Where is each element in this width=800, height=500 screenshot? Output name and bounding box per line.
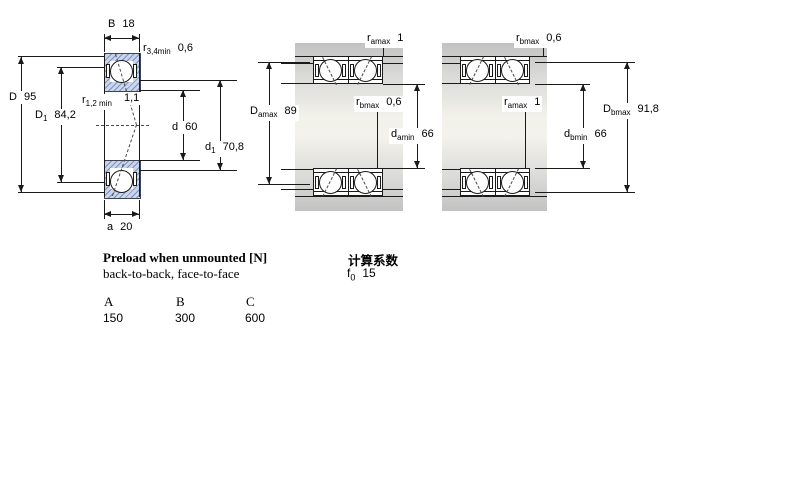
dim-label-r34min: r3,4min0,6 (141, 42, 195, 58)
cage-segment (524, 176, 528, 189)
dim-label-d: d60 (170, 121, 199, 134)
pair-divider-line (348, 168, 349, 196)
arrowhead (217, 163, 223, 170)
preload-column-a: A (104, 294, 113, 310)
bearing-ball (501, 59, 524, 82)
arrowhead (414, 161, 420, 168)
shaft-line (383, 63, 403, 64)
dimension-line-Dbmax (627, 62, 628, 192)
cage-segment (377, 176, 381, 189)
bearing-ball (319, 59, 342, 82)
bearing-datasheet-drawing: B18 r3,4min0,6 D95 D184,2 r1,2 min 1,1 d… (0, 0, 800, 500)
cage-segment (133, 64, 137, 78)
extension-line (140, 90, 200, 91)
cage-segment (524, 64, 528, 77)
preload-subtitle: back-to-back, face-to-face (103, 266, 239, 282)
extension-line (57, 182, 104, 183)
extension-line (535, 192, 635, 193)
shaft-line (383, 189, 403, 190)
arrowhead (132, 35, 139, 41)
arrowhead (180, 153, 186, 160)
arrowhead (58, 67, 64, 74)
leader-line (525, 109, 526, 168)
shaft-line (281, 189, 313, 190)
arrowhead (217, 80, 223, 87)
cage-segment (133, 172, 137, 186)
preload-column-b: B (176, 294, 185, 310)
arrowhead (580, 84, 586, 91)
center-line (96, 125, 149, 126)
preload-column-c: C (246, 294, 255, 310)
extension-line (258, 184, 310, 185)
dim-value-r12min: 1,1 (122, 92, 141, 105)
dim-label-ramax: ramax1 (502, 96, 542, 112)
shaft-line (442, 169, 460, 170)
pair-divider-line (348, 56, 349, 84)
arrowhead (580, 161, 586, 168)
shaft-line (281, 83, 313, 84)
extension-line (535, 168, 590, 169)
housing-step-line (442, 196, 547, 197)
extension-line (18, 56, 104, 57)
arrowhead (104, 35, 111, 41)
arrowhead (132, 211, 139, 217)
shaft-line (442, 63, 460, 64)
cage-segment (489, 176, 493, 189)
bearing-ball (501, 171, 524, 194)
cage-segment (489, 64, 493, 77)
shaft-line (281, 63, 313, 64)
extension-line (18, 192, 104, 193)
dim-label-B: B18 (106, 18, 137, 31)
dim-label-a: a20 (105, 221, 134, 234)
arrowhead (266, 62, 272, 69)
arrowhead (414, 84, 420, 91)
preload-value-a: 150 (103, 311, 123, 325)
pair-divider-line (495, 168, 496, 196)
pair-divider-line (495, 56, 496, 84)
cage-segment (342, 64, 346, 77)
arrowhead (266, 177, 272, 184)
extension-line (535, 62, 635, 63)
arrowhead (180, 90, 186, 97)
arrowhead (18, 57, 24, 64)
dimension-line-D (21, 57, 22, 192)
extension-line (140, 160, 200, 161)
bearing-ball (354, 171, 377, 194)
dim-label-ramax: ramax1 (365, 32, 405, 48)
dim-label-dbmin: dbmin66 (562, 128, 609, 144)
bearing-ball (110, 60, 133, 83)
cage-segment (377, 64, 381, 77)
preload-value-c: 600 (245, 311, 265, 325)
shaft-line (442, 189, 460, 190)
extension-line (140, 170, 237, 171)
arrowhead (18, 185, 24, 192)
cage-segment (342, 176, 346, 189)
leader-line (377, 109, 378, 168)
calculation-f0: f015 (347, 266, 376, 282)
dim-label-r12min: r1,2 min (80, 94, 114, 110)
extension-line (139, 200, 140, 219)
dim-label-Dbmax: Dbmax91,8 (601, 103, 661, 119)
dim-label-D: D95 (7, 91, 38, 104)
bearing-ball (466, 171, 489, 194)
preload-title: Preload when unmounted [N] (103, 250, 267, 266)
dim-label-rbmax: rbmax0,6 (354, 96, 404, 112)
dim-label-damin: damin66 (389, 128, 436, 144)
dimension-line-damin (417, 84, 418, 168)
dimension-line-Damax (269, 62, 270, 184)
bearing-ball (319, 171, 342, 194)
housing-step-line (295, 196, 403, 197)
arrowhead (104, 211, 111, 217)
extension-line (139, 34, 140, 52)
dim-label-rbmax: rbmax0,6 (514, 32, 564, 48)
shaft-line (442, 83, 460, 84)
bearing-ball (466, 59, 489, 82)
dimension-line-dbmin (583, 84, 584, 168)
dim-label-D1: D184,2 (33, 109, 78, 125)
arrowhead (624, 185, 630, 192)
preload-value-b: 300 (175, 311, 195, 325)
shaft-line (281, 169, 313, 170)
dim-label-Damax: Damax89 (248, 105, 299, 121)
arrowhead (58, 175, 64, 182)
extension-line (57, 67, 104, 68)
extension-line (383, 168, 425, 169)
dim-label-d1: d170,8 (203, 141, 246, 157)
arrowhead (624, 62, 630, 69)
bearing-ball (354, 59, 377, 82)
